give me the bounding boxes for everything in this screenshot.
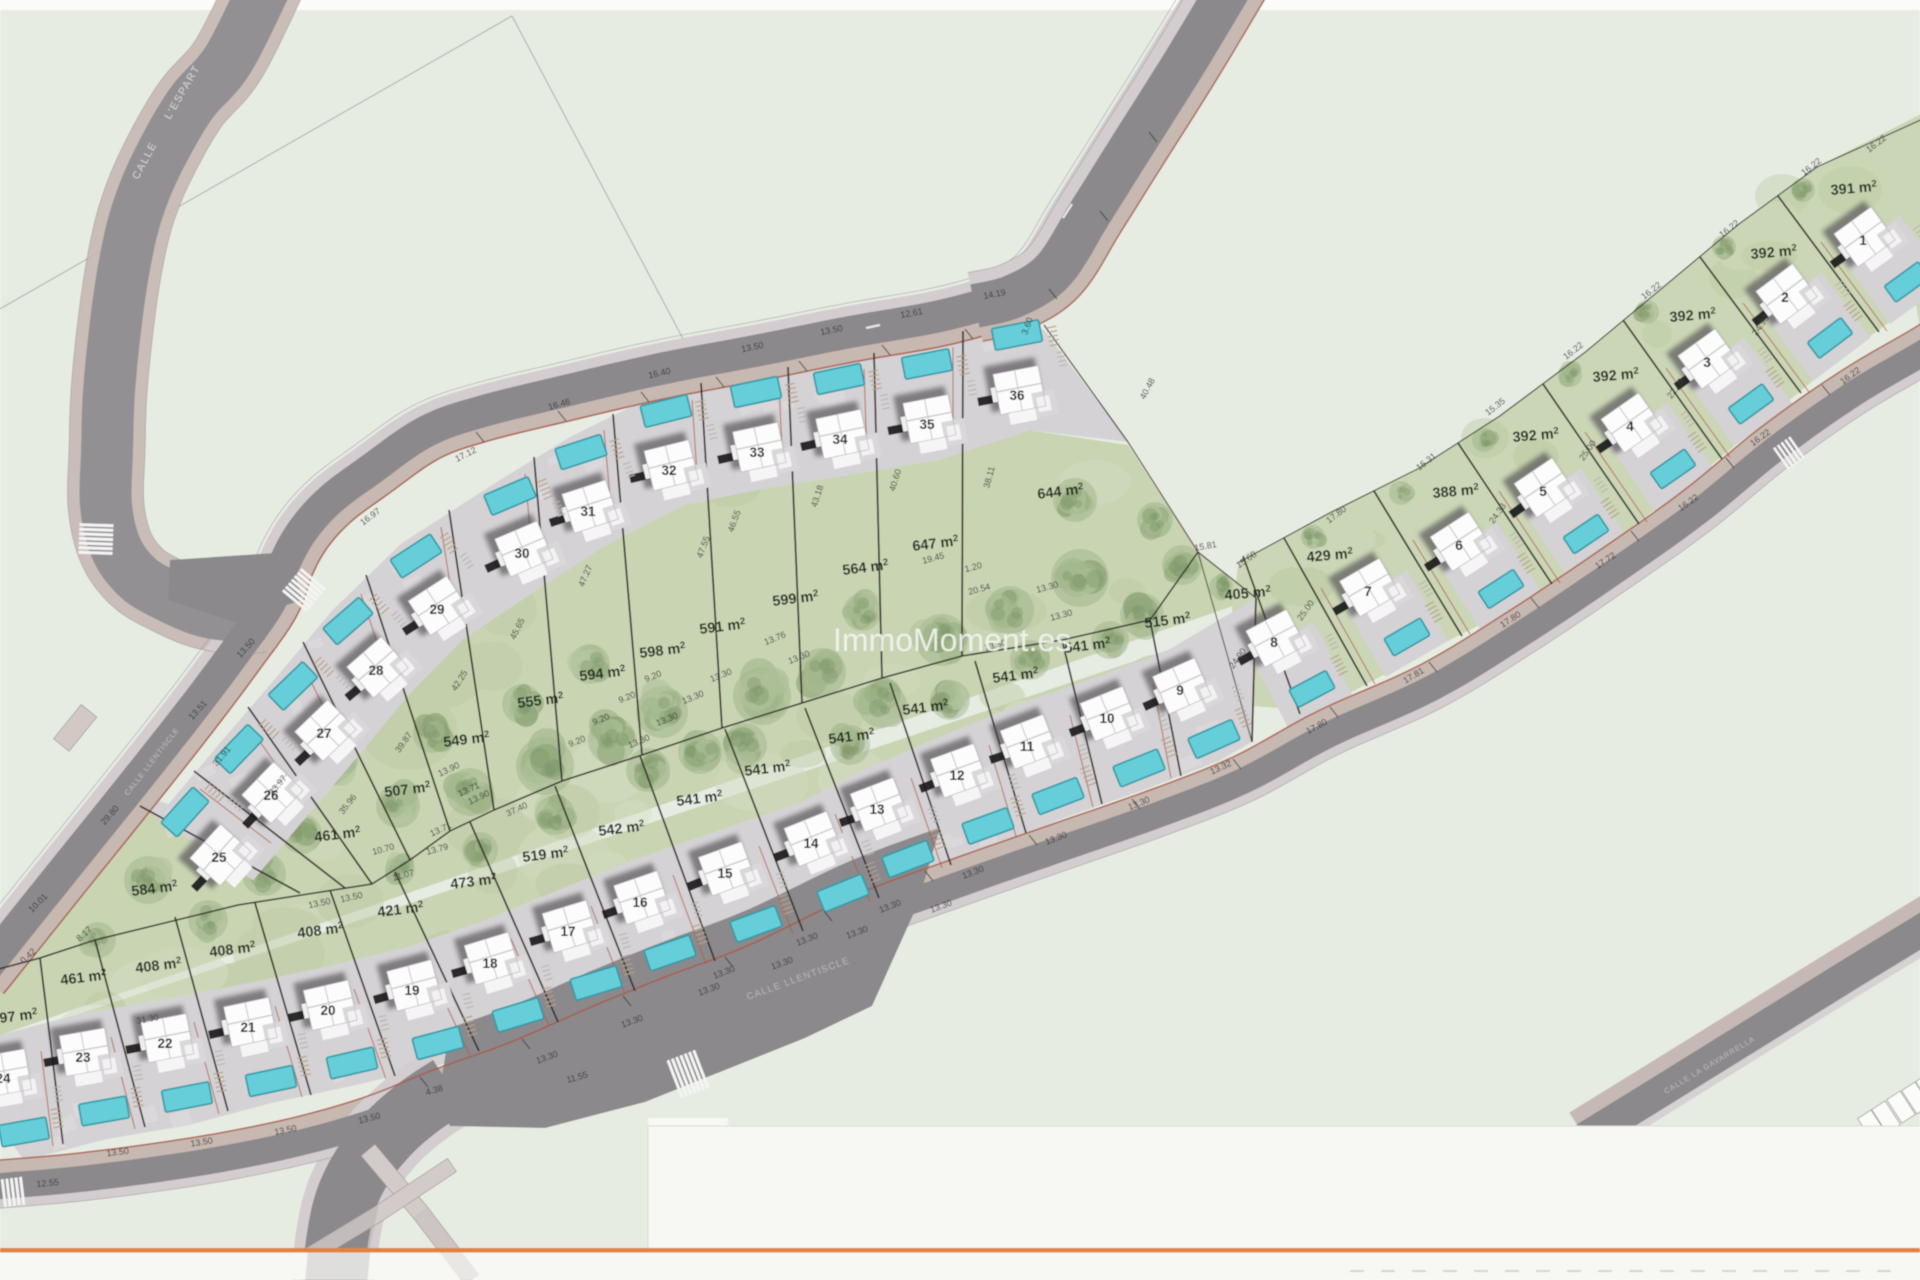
svg-text:2: 2 <box>1781 290 1789 305</box>
svg-text:1: 1 <box>1859 233 1867 248</box>
svg-text:31: 31 <box>580 504 596 519</box>
svg-text:11: 11 <box>1020 739 1035 754</box>
svg-text:16: 16 <box>632 895 648 910</box>
svg-text:8: 8 <box>1270 635 1278 650</box>
svg-text:36: 36 <box>1009 388 1025 403</box>
svg-text:21: 21 <box>240 1020 256 1035</box>
svg-text:34: 34 <box>832 432 848 447</box>
svg-text:24: 24 <box>0 1071 11 1086</box>
svg-text:7: 7 <box>1364 584 1372 599</box>
svg-text:28: 28 <box>368 663 384 678</box>
svg-text:ImmoMoment.es: ImmoMoment.es <box>833 622 1071 658</box>
svg-text:4: 4 <box>1626 419 1634 434</box>
svg-text:30: 30 <box>514 546 529 561</box>
svg-text:5: 5 <box>1539 484 1547 499</box>
svg-text:32: 32 <box>661 463 676 478</box>
svg-text:23: 23 <box>75 1050 91 1065</box>
svg-text:27: 27 <box>316 726 331 741</box>
svg-text:29: 29 <box>429 602 444 617</box>
svg-text:17: 17 <box>560 924 575 939</box>
svg-text:25: 25 <box>211 850 227 865</box>
svg-text:6: 6 <box>1455 538 1463 553</box>
svg-text:12: 12 <box>949 768 964 783</box>
svg-text:15: 15 <box>717 866 733 881</box>
svg-text:33: 33 <box>749 445 765 460</box>
svg-text:9: 9 <box>1176 683 1184 698</box>
svg-text:13: 13 <box>869 802 885 817</box>
svg-text:20: 20 <box>320 1003 335 1018</box>
svg-text:3: 3 <box>1703 355 1711 370</box>
svg-text:35: 35 <box>919 417 935 432</box>
svg-text:18: 18 <box>482 956 498 971</box>
svg-text:22: 22 <box>157 1036 172 1051</box>
svg-text:19: 19 <box>404 983 419 998</box>
svg-text:14: 14 <box>803 836 819 851</box>
svg-text:10: 10 <box>1099 711 1114 726</box>
